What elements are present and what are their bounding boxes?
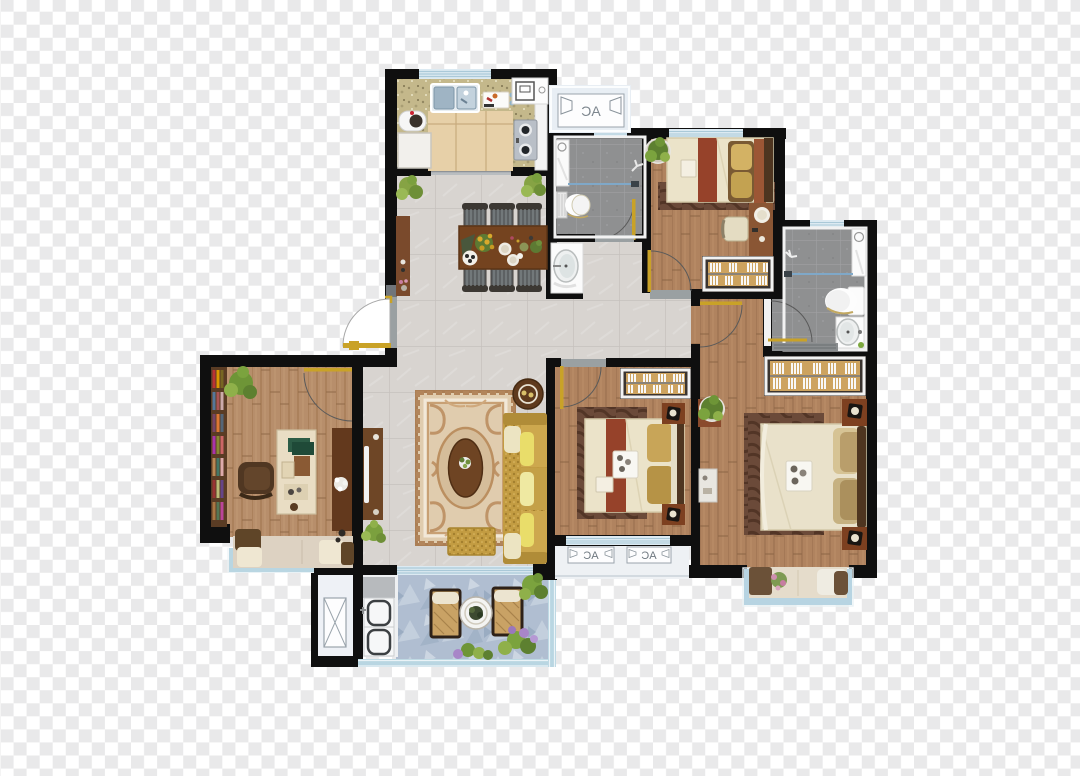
svg-text:AC: AC xyxy=(641,550,656,562)
svg-text:AC: AC xyxy=(581,103,600,119)
svg-text:AC: AC xyxy=(583,550,598,562)
